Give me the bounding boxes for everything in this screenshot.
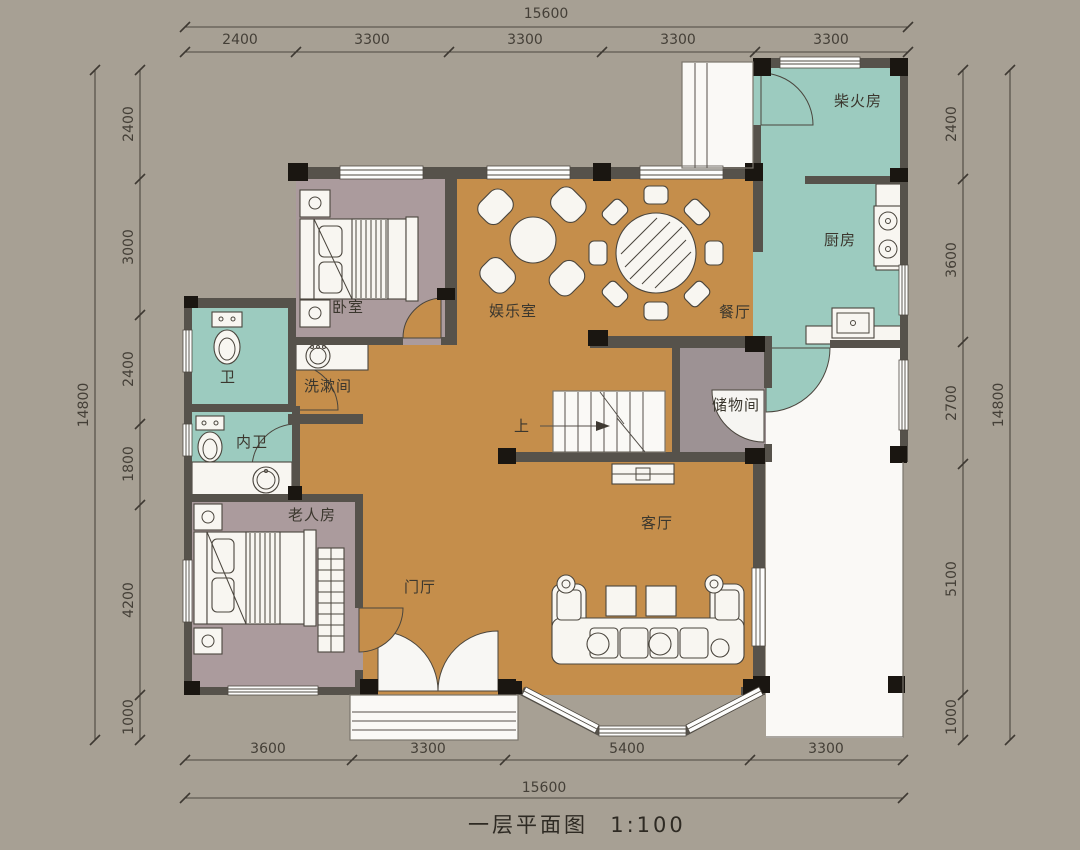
dim-top-seg-2: 3300	[507, 32, 543, 48]
dim-right-seg-4: 1000	[944, 699, 960, 735]
window-living-side	[752, 568, 765, 646]
dim-right-seg-0: 2400	[944, 106, 960, 142]
plan-title: 一层平面图	[468, 813, 588, 837]
window-elder-left	[183, 560, 192, 622]
wardrobe-icon	[318, 548, 344, 652]
label-bedroom: 卧室	[332, 298, 364, 316]
label-ensuite: 内卫	[236, 433, 268, 451]
dim-left-seg-2: 2400	[121, 351, 137, 387]
label-elder-room: 老人房	[288, 506, 336, 524]
floor-plan-canvas: 柴火房 厨房 卧室 娱乐室 餐厅 卫 洗漱间 内卫 储物间 老人房 门厅 客厅 …	[0, 0, 1080, 850]
label-foyer: 门厅	[404, 578, 436, 596]
dim-left-seg-4: 4200	[121, 582, 137, 618]
dim-bottom-seg-3: 3300	[808, 741, 844, 757]
dim-top-seg-4: 3300	[813, 32, 849, 48]
dim-left-seg-5: 1000	[121, 699, 137, 735]
window-ensuite	[183, 424, 192, 456]
dim-top-seg-1: 3300	[354, 32, 390, 48]
toilet-icon	[212, 312, 242, 364]
shoe-cabinet-icon	[612, 464, 674, 484]
entry-porch	[350, 695, 518, 740]
title-block: 一层平面图 1:100	[468, 813, 686, 837]
ensuite-toilet-icon	[196, 416, 224, 462]
dim-right-seg-3: 5100	[944, 561, 960, 597]
dim-right-seg-2: 2700	[944, 385, 960, 421]
label-kitchen: 厨房	[824, 231, 856, 249]
dim-right-seg-1: 3600	[944, 242, 960, 278]
label-dining: 餐厅	[719, 303, 751, 321]
ensuite-vanity-icon	[192, 462, 292, 498]
window-elder-bottom	[228, 686, 318, 695]
dim-top-total: 15600	[524, 6, 569, 22]
label-washroom: 洗漱间	[304, 377, 352, 395]
plan-scale: 1:100	[610, 813, 686, 837]
dim-left-seg-3: 1800	[121, 446, 137, 482]
stove-icon	[874, 206, 902, 266]
dim-right-total: 14800	[991, 383, 1007, 428]
upper-porch	[682, 62, 753, 170]
window-top-bedroom	[340, 166, 423, 179]
dim-left-seg-1: 3000	[121, 229, 137, 265]
dim-bottom-seg-1: 3300	[410, 741, 446, 757]
label-living: 客厅	[641, 514, 673, 532]
kitchen-sink-icon	[832, 308, 874, 338]
washroom-sink-icon	[296, 342, 368, 370]
stairwell	[553, 391, 665, 452]
dim-bottom-seg-2: 5400	[609, 741, 645, 757]
dim-top-seg-0: 2400	[222, 32, 258, 48]
dim-top-seg-3: 3300	[660, 32, 696, 48]
label-firewood: 柴火房	[834, 92, 882, 110]
floor-plan-drawing: 柴火房 厨房 卧室 娱乐室 餐厅 卫 洗漱间 内卫 储物间 老人房 门厅 客厅 …	[0, 0, 1080, 850]
label-stairs-up: 上	[514, 417, 530, 435]
dim-bottom-seg-0: 3600	[250, 741, 286, 757]
dim-left-total: 14800	[76, 383, 92, 428]
label-storage: 储物间	[712, 396, 760, 414]
label-entertainment: 娱乐室	[489, 302, 537, 320]
label-toilet: 卫	[220, 368, 236, 386]
window-kitchen	[899, 265, 908, 315]
bay-window-center	[599, 726, 686, 736]
window-back-corridor	[899, 360, 908, 430]
dim-bottom-total: 15600	[522, 780, 567, 796]
window-firewood	[780, 57, 860, 68]
window-top-hall	[487, 166, 570, 179]
window-toilet	[183, 330, 192, 372]
dim-left-seg-0: 2400	[121, 106, 137, 142]
